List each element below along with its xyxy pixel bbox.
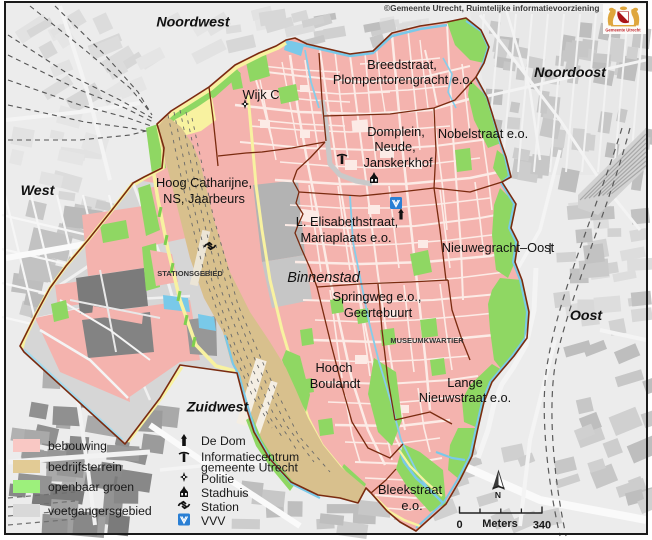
svg-text:Nobelstraat e.o.: Nobelstraat e.o. (438, 126, 528, 141)
svg-text:Station: Station (201, 500, 239, 514)
svg-text:Noordoost: Noordoost (534, 65, 607, 81)
svg-text:Gemeente Utrecht: Gemeente Utrecht (605, 28, 641, 33)
svg-text:Breedstraat,: Breedstraat, (367, 57, 437, 72)
svg-text:0: 0 (456, 519, 462, 531)
svg-text:Wijk C: Wijk C (243, 87, 280, 102)
svg-text:Binnenstad: Binnenstad (287, 270, 360, 286)
svg-text:NS, Jaarbeurs: NS, Jaarbeurs (163, 191, 245, 206)
svg-text:340: 340 (533, 520, 551, 532)
svg-text:Nieuwstraat e.o.: Nieuwstraat e.o. (419, 390, 511, 405)
svg-text:Meters: Meters (482, 518, 517, 530)
svg-text:Hoog Catharijne,: Hoog Catharijne, (156, 175, 252, 190)
svg-text:Mariaplaats e.o.: Mariaplaats e.o. (300, 230, 391, 245)
svg-text:Hooch: Hooch (316, 360, 353, 375)
svg-text:Janskerkhof: Janskerkhof (364, 155, 433, 170)
svg-text:Oost: Oost (570, 308, 604, 324)
svg-text:e.o.: e.o. (401, 498, 422, 513)
svg-text:VVV: VVV (201, 514, 226, 528)
svg-text:Bleekstraat: Bleekstraat (378, 482, 442, 497)
svg-text:openbaar groen: openbaar groen (48, 480, 134, 494)
svg-text:bedrijfsterrein: bedrijfsterrein (48, 460, 122, 474)
svg-text:MUSEUMKWARTIER: MUSEUMKWARTIER (390, 336, 464, 345)
svg-text:Stadhuis: Stadhuis (201, 486, 248, 500)
svg-text:Domplein,: Domplein, (367, 124, 425, 139)
svg-text:bebouwing: bebouwing (48, 439, 107, 453)
svg-text:voetgangersgebied: voetgangersgebied (48, 504, 152, 518)
svg-text:Zuidwest: Zuidwest (186, 400, 250, 416)
svg-text:Lange: Lange (447, 375, 483, 390)
svg-text:Plompentorengracht e.o.: Plompentorengracht e.o. (333, 72, 473, 87)
svg-text:Nieuwegracht–Oost: Nieuwegracht–Oost (442, 240, 555, 255)
svg-text:STATIONSGEBIED: STATIONSGEBIED (157, 269, 223, 278)
svg-text:Springweg e.o.,: Springweg e.o., (333, 289, 422, 304)
svg-text:De Dom: De Dom (201, 434, 246, 448)
svg-text:West: West (21, 183, 56, 199)
svg-text:L. Elisabethstraat,: L. Elisabethstraat, (296, 214, 398, 229)
svg-text:N: N (495, 490, 501, 500)
svg-text:Boulandt: Boulandt (310, 376, 361, 391)
svg-text:Politie: Politie (201, 472, 234, 486)
svg-text:Geertebuurt: Geertebuurt (344, 305, 413, 320)
svg-text:Noordwest: Noordwest (156, 15, 231, 31)
svg-text:Neude,: Neude, (374, 139, 415, 154)
svg-text:©Gemeente Utrecht, Ruimtelijke: ©Gemeente Utrecht, Ruimtelijke informati… (384, 3, 599, 13)
